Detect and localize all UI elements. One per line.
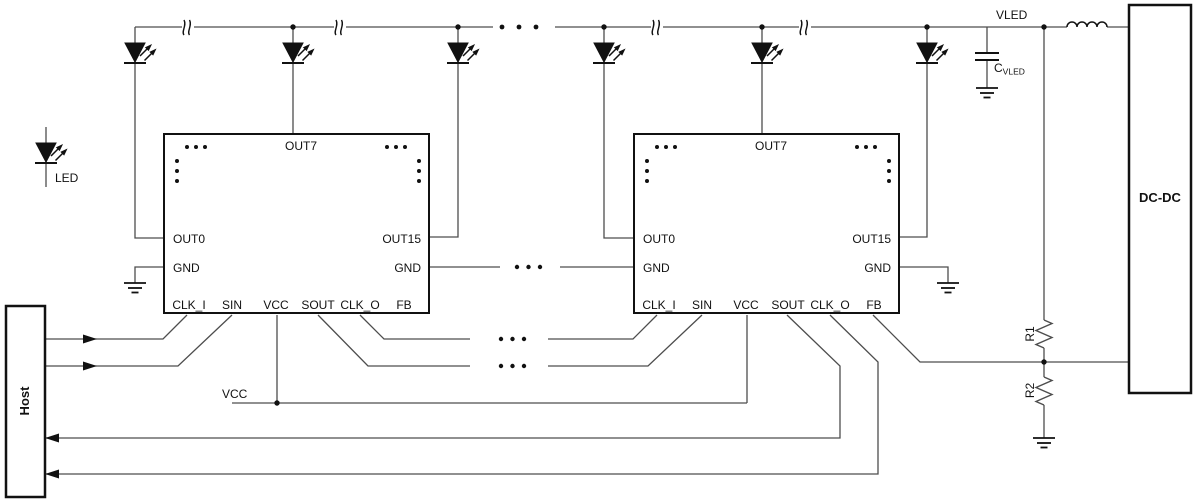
dcdc-label: DC-DC [1139,190,1181,205]
legend-led-label: LED [55,171,79,185]
wire-break-icon [335,20,342,35]
cap-label: CVLED [994,61,1025,77]
resistor-r1-body [1036,320,1052,348]
vled-net-label: VLED [996,8,1028,22]
schematic-canvas: OUT7 OUT0 GND OUT15 GND CLK_I SIN VCC SO… [0,0,1200,504]
signal-arrows [45,335,97,479]
arrow-right-icon [83,362,97,371]
arrow-left-icon [45,470,59,479]
chip2-outline [634,134,899,313]
ground-icon [1033,438,1055,448]
wire-host-sin [45,315,232,366]
wire-interchip-data [318,315,702,366]
chip1-pin-sin: SIN [222,298,242,312]
ground-icon [937,283,959,293]
led-icon [751,43,783,63]
led-icon [916,43,948,63]
vcc-net-label: VCC [222,387,248,401]
chip1-pin-clk-o: CLK_O [340,298,379,312]
led-icon [124,43,156,63]
wire-vcc-rail [232,315,747,403]
wire-gnd-chip2-right [900,267,948,283]
cap-label-sub: VLED [1003,67,1025,77]
chip2-pin-out0: OUT0 [643,232,675,246]
chip2-pin-sin: SIN [692,298,712,312]
chip1-outline [164,134,429,313]
cap-label-main: C [994,61,1003,75]
led-icon [447,43,479,63]
r1-label: R1 [1023,326,1037,342]
chip1-pin-out15: OUT15 [382,232,421,246]
chip1-pin-fb: FB [396,298,411,312]
ground-icon [124,283,146,293]
wire-led-columns [135,27,927,238]
chip1-pin-clk-i: CLK_I [172,298,205,312]
led-driver-schematic: OUT7 OUT0 GND OUT15 GND CLK_I SIN VCC SO… [0,0,1200,504]
wire-interchip-clk [360,315,657,339]
chip2-pin-out15: OUT15 [852,232,891,246]
chip2-pin-sout: SOUT [771,298,805,312]
led-driver-chip-2: OUT7 OUT0 GND OUT15 GND CLK_I SIN VCC SO… [634,134,899,313]
chip2-pin-clk-i: CLK_I [642,298,675,312]
legend-led-icon [35,143,67,163]
wire-fb [873,315,1129,362]
wire-gnd-chip1-left [135,267,164,283]
chip2-pin-fb: FB [866,298,881,312]
led-icon [593,43,625,63]
chip1-pin-out7: OUT7 [285,139,317,153]
chip1-pin-vcc: VCC [263,298,289,312]
led-driver-chip-1: OUT7 OUT0 GND OUT15 GND CLK_I SIN VCC SO… [164,134,429,313]
chip2-pin-vcc: VCC [733,298,759,312]
led-icon [282,43,314,63]
chip1-pin-gnd-right: GND [394,261,421,275]
chip2-pin-gnd-right: GND [864,261,891,275]
ground-icon [976,88,998,98]
chip1-pin-out0: OUT0 [173,232,205,246]
capacitor-plates [975,53,999,60]
chip2-pin-gnd-left: GND [643,261,670,275]
inductor-icon [1067,22,1107,27]
r2-label: R2 [1023,383,1037,399]
chip2-pin-clk-o: CLK_O [810,298,849,312]
chip1-pin-sout: SOUT [301,298,335,312]
ellipsis-dots [499,25,542,369]
wire-return-sout [45,315,840,438]
arrow-right-icon [83,335,97,344]
chip1-pin-gnd-left: GND [173,261,200,275]
wires [45,27,1129,474]
chip2-pin-out7: OUT7 [755,139,787,153]
arrow-left-icon [45,434,59,443]
wire-host-clk [45,315,187,339]
resistor-r2-body [1036,377,1052,405]
host-label: Host [17,386,32,416]
wire-break-icon [183,20,190,35]
wire-break-icon [800,20,807,35]
wire-break-icon [652,20,659,35]
junction-dots [274,24,1046,405]
